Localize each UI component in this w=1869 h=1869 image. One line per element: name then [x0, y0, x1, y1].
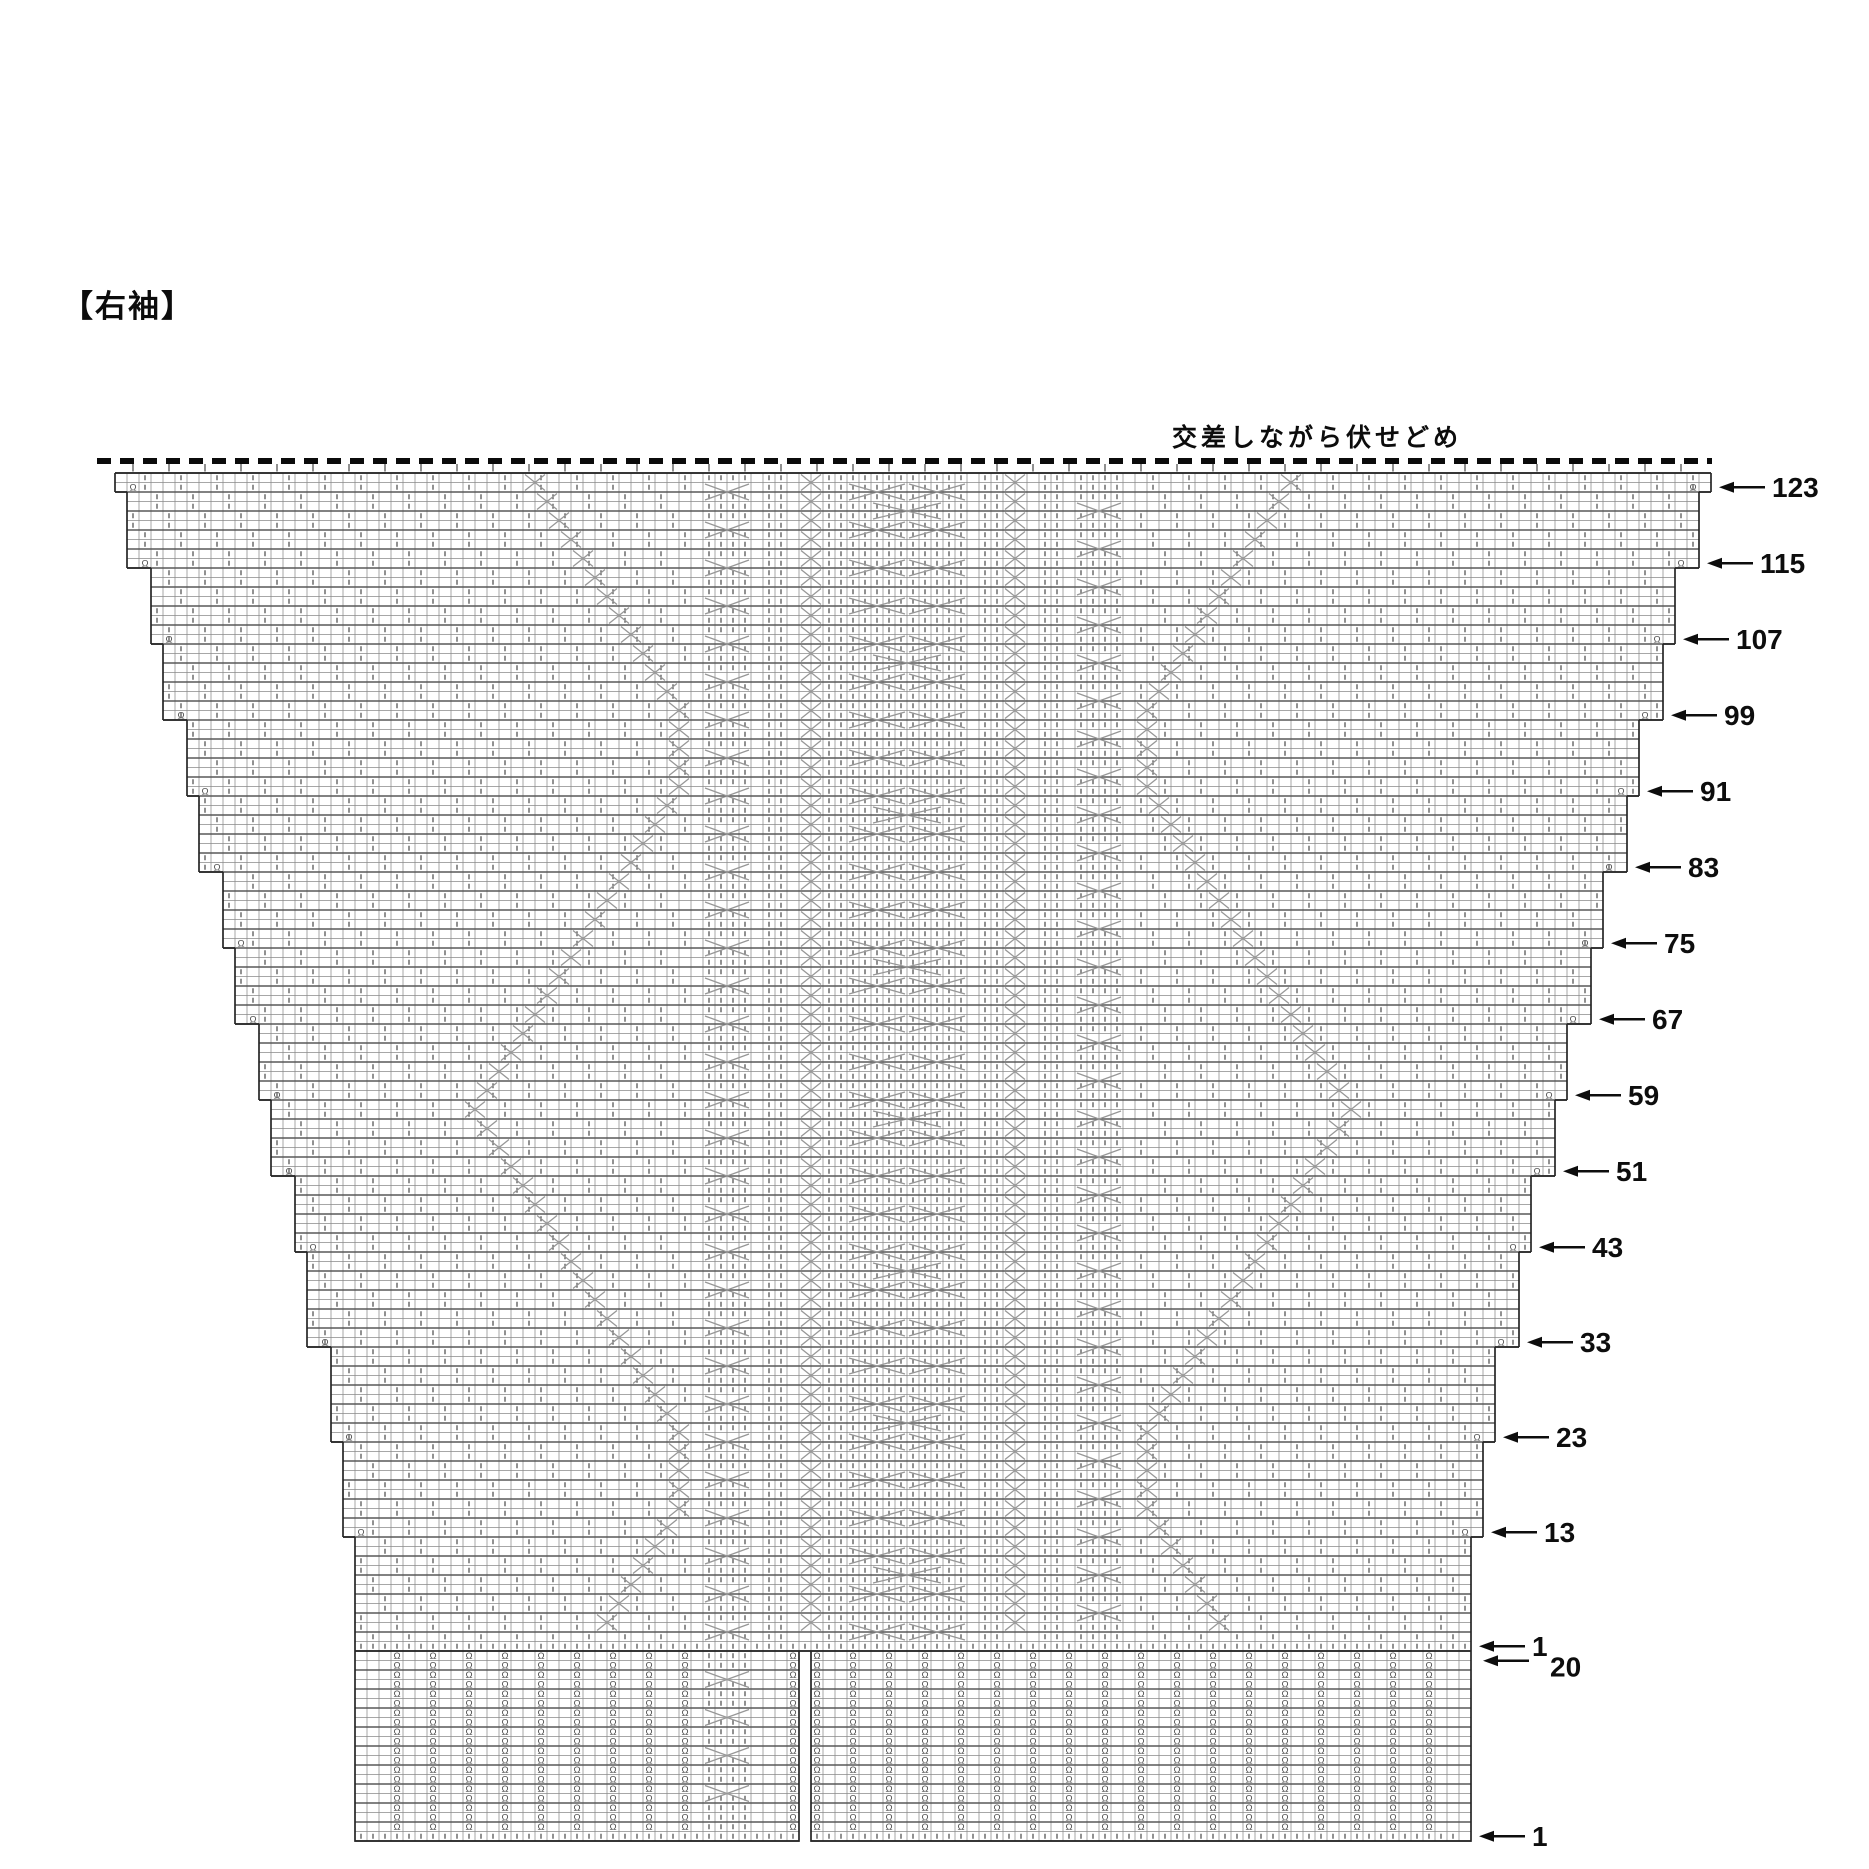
- svg-text:Ω: Ω: [201, 786, 208, 797]
- row-marker-label: 99: [1724, 700, 1755, 731]
- arrow-left-icon: [1491, 1527, 1506, 1538]
- svg-text:Ω: Ω: [1473, 1432, 1480, 1443]
- svg-text:Ω: Ω: [573, 1822, 580, 1833]
- svg-text:Ω: Ω: [1281, 1822, 1288, 1833]
- svg-text:Ω: Ω: [141, 558, 148, 569]
- svg-text:Ω: Ω: [429, 1822, 436, 1833]
- svg-text:Ω: Ω: [1137, 1822, 1144, 1833]
- arrow-left-icon: [1707, 558, 1722, 569]
- knitting-chart: ΩΩΩΩΩΩΩΩΩΩΩΩΩΩΩΩΩΩΩΩΩΩΩΩΩΩΩΩΩΩΩΩΩΩΩΩΩΩΩΩ…: [0, 0, 1869, 1869]
- arrow-left-icon: [1719, 482, 1734, 493]
- row-marker-label: 43: [1592, 1232, 1623, 1263]
- svg-text:Ω: Ω: [1065, 1822, 1072, 1833]
- svg-text:Ω: Ω: [285, 1166, 292, 1177]
- svg-text:Ω: Ω: [1617, 786, 1624, 797]
- svg-text:Ω: Ω: [1245, 1822, 1252, 1833]
- svg-text:Ω: Ω: [1689, 482, 1696, 493]
- svg-text:Ω: Ω: [321, 1337, 328, 1348]
- svg-text:Ω: Ω: [1029, 1822, 1036, 1833]
- svg-text:Ω: Ω: [645, 1822, 652, 1833]
- svg-text:Ω: Ω: [249, 1014, 256, 1025]
- arrow-left-icon: [1599, 1014, 1614, 1025]
- arrow-left-icon: [1527, 1337, 1542, 1348]
- row-marker-label: 115: [1760, 548, 1805, 579]
- svg-text:Ω: Ω: [957, 1822, 964, 1833]
- row-marker-label: 1: [1532, 1631, 1548, 1662]
- row-marker-label: 107: [1736, 624, 1783, 655]
- row-marker-label: 75: [1664, 928, 1695, 959]
- svg-text:Ω: Ω: [537, 1822, 544, 1833]
- svg-text:Ω: Ω: [1641, 710, 1648, 721]
- svg-text:Ω: Ω: [1173, 1822, 1180, 1833]
- arrow-left-icon: [1483, 1655, 1498, 1666]
- arrow-left-icon: [1635, 862, 1650, 873]
- row-marker-label: 67: [1652, 1004, 1683, 1035]
- svg-text:Ω: Ω: [789, 1822, 796, 1833]
- row-marker-label: 20: [1550, 1651, 1581, 1682]
- svg-text:Ω: Ω: [1209, 1822, 1216, 1833]
- arrow-left-icon: [1683, 634, 1698, 645]
- svg-text:Ω: Ω: [1389, 1822, 1396, 1833]
- row-marker-label: 1: [1532, 1821, 1548, 1852]
- svg-text:Ω: Ω: [1317, 1822, 1324, 1833]
- arrow-left-icon: [1671, 710, 1686, 721]
- svg-text:Ω: Ω: [1653, 634, 1660, 645]
- row-marker-label: 123: [1772, 472, 1819, 503]
- svg-text:Ω: Ω: [177, 710, 184, 721]
- arrow-left-icon: [1479, 1831, 1494, 1842]
- svg-text:Ω: Ω: [129, 482, 136, 493]
- svg-text:Ω: Ω: [849, 1822, 856, 1833]
- svg-text:Ω: Ω: [921, 1822, 928, 1833]
- svg-text:Ω: Ω: [1677, 558, 1684, 569]
- row-marker-label: 91: [1700, 776, 1731, 807]
- row-marker-label: 13: [1544, 1517, 1575, 1548]
- svg-text:Ω: Ω: [1533, 1166, 1540, 1177]
- row-marker-label: 51: [1616, 1156, 1647, 1187]
- svg-text:Ω: Ω: [1605, 862, 1612, 873]
- arrow-left-icon: [1503, 1432, 1518, 1443]
- svg-text:Ω: Ω: [609, 1822, 616, 1833]
- svg-text:Ω: Ω: [309, 1242, 316, 1253]
- svg-text:Ω: Ω: [393, 1822, 400, 1833]
- svg-text:Ω: Ω: [1353, 1822, 1360, 1833]
- svg-text:Ω: Ω: [813, 1822, 820, 1833]
- arrow-left-icon: [1479, 1641, 1494, 1652]
- knitting-pattern-page: 【右袖】 交差しながら伏せどめ ΩΩΩΩΩΩΩΩΩΩΩΩΩΩΩΩΩΩΩΩΩΩΩΩ…: [0, 0, 1869, 1869]
- svg-text:Ω: Ω: [213, 862, 220, 873]
- arrow-left-icon: [1563, 1166, 1578, 1177]
- svg-text:Ω: Ω: [465, 1822, 472, 1833]
- svg-text:Ω: Ω: [501, 1822, 508, 1833]
- svg-text:Ω: Ω: [273, 1090, 280, 1101]
- svg-text:Ω: Ω: [345, 1432, 352, 1443]
- svg-text:Ω: Ω: [1509, 1242, 1516, 1253]
- svg-text:Ω: Ω: [1569, 1014, 1576, 1025]
- arrow-left-icon: [1539, 1242, 1554, 1253]
- svg-text:Ω: Ω: [1101, 1822, 1108, 1833]
- arrow-left-icon: [1647, 786, 1662, 797]
- svg-text:Ω: Ω: [237, 938, 244, 949]
- svg-text:Ω: Ω: [1581, 938, 1588, 949]
- arrow-left-icon: [1611, 938, 1626, 949]
- svg-text:Ω: Ω: [165, 634, 172, 645]
- svg-text:Ω: Ω: [885, 1822, 892, 1833]
- row-marker-label: 33: [1580, 1327, 1611, 1358]
- svg-text:Ω: Ω: [1497, 1337, 1504, 1348]
- arrow-left-icon: [1575, 1090, 1590, 1101]
- svg-text:Ω: Ω: [681, 1822, 688, 1833]
- svg-text:Ω: Ω: [1545, 1090, 1552, 1101]
- row-marker-label: 23: [1556, 1422, 1587, 1453]
- row-marker-label: 83: [1688, 852, 1719, 883]
- svg-text:Ω: Ω: [1461, 1527, 1468, 1538]
- svg-text:Ω: Ω: [357, 1527, 364, 1538]
- row-marker-label: 59: [1628, 1080, 1659, 1111]
- svg-text:Ω: Ω: [1425, 1822, 1432, 1833]
- svg-text:Ω: Ω: [993, 1822, 1000, 1833]
